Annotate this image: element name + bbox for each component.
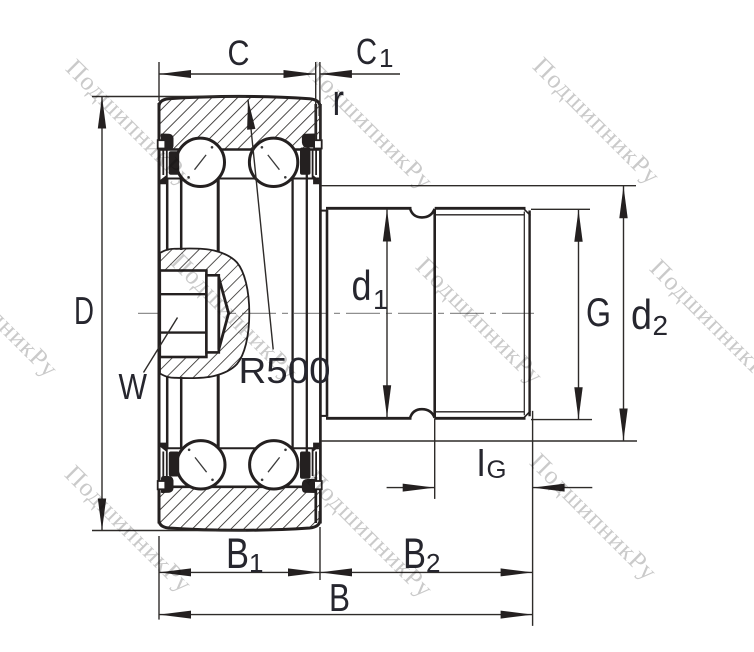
svg-text:l: l	[477, 443, 485, 484]
svg-text:1: 1	[249, 548, 263, 578]
svg-text:ПодшипникРу: ПодшипникРу	[0, 244, 65, 383]
svg-text:1: 1	[379, 43, 393, 73]
svg-text:W: W	[119, 366, 148, 407]
svg-text:D: D	[74, 290, 94, 333]
svg-text:ПодшипникРу: ПодшипникРу	[524, 447, 663, 586]
svg-text:G: G	[586, 291, 611, 335]
svg-text:B: B	[226, 530, 249, 578]
svg-text:d: d	[631, 291, 652, 338]
svg-text:G: G	[487, 456, 507, 484]
svg-text:C: C	[228, 34, 250, 73]
svg-text:1: 1	[373, 284, 388, 315]
svg-text:d: d	[352, 262, 372, 309]
svg-text:ПодшипникРу: ПодшипникРу	[527, 51, 666, 190]
svg-text:2: 2	[653, 310, 669, 341]
svg-text:B: B	[329, 577, 350, 620]
svg-text:C: C	[356, 31, 377, 72]
